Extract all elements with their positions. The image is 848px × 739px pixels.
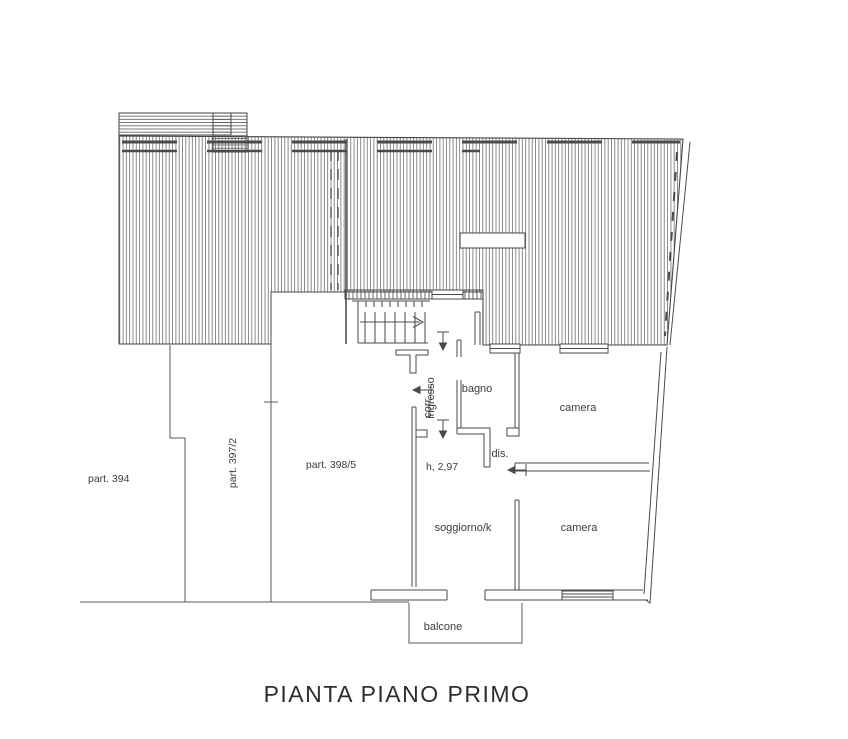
west-wall-jamb <box>416 430 427 437</box>
soggiorno-camera-divider <box>515 500 519 590</box>
roof-area <box>119 113 690 345</box>
floor-plan-page: part. 394 part. 397/2 part. 398/5 ingres… <box>0 0 848 739</box>
room-label-soggiorno: soggiorno/k <box>435 522 492 534</box>
south-window <box>562 591 613 600</box>
roof-hatched-region <box>119 136 683 345</box>
vestibule-wall <box>475 312 480 345</box>
bagno-camera-divider <box>515 352 519 428</box>
parcel-label-397: part. 397/2 <box>227 438 239 488</box>
stair-direction-arrow <box>360 317 423 328</box>
room-label-bagno: bagno <box>462 383 493 395</box>
stair-hall-wall-right <box>463 290 483 299</box>
room-label-balcone: balcone <box>424 621 463 633</box>
entry-door-arrow <box>437 332 449 350</box>
roof-ridge-block-extension <box>213 113 247 152</box>
annotation-height: h, 2,97 <box>426 461 458 473</box>
parcel-label-398: part. 398/5 <box>306 459 356 471</box>
bagno-wall-lower <box>457 380 461 428</box>
south-wall-left <box>371 590 447 600</box>
stair-treads <box>365 312 425 343</box>
room-label-camera-bottom: camera <box>561 522 599 534</box>
camera-door-arrow <box>508 464 526 476</box>
parcel-line-394-397 <box>170 345 185 602</box>
parcel-label-394: part. 394 <box>88 473 130 485</box>
floor-plan-drawing: part. 394 part. 397/2 part. 398/5 ingres… <box>0 0 848 739</box>
bagno-wall-upper <box>457 340 461 357</box>
stair-hall-wall <box>345 290 432 299</box>
room-label-camera-top: camera <box>560 402 598 414</box>
stair-wall-stub <box>396 350 428 373</box>
vestibule-window <box>432 290 463 299</box>
room-label-dis: dis. <box>491 448 508 460</box>
east-wall-slanted <box>644 347 667 603</box>
plan-title: PIANTA PIANO PRIMO <box>264 681 531 707</box>
staircase <box>345 290 483 373</box>
labels: part. 394 part. 397/2 part. 398/5 ingres… <box>88 377 598 633</box>
bagno-south-wall <box>457 428 490 467</box>
stair-ticks <box>366 301 422 307</box>
camera-door-jamb <box>507 428 519 436</box>
roof-opening <box>460 233 525 248</box>
west-wall <box>412 407 416 587</box>
camere-divider-wall <box>515 463 650 471</box>
dis-door-arrow <box>437 420 449 438</box>
room-label-corridoio: corr. <box>422 396 434 417</box>
